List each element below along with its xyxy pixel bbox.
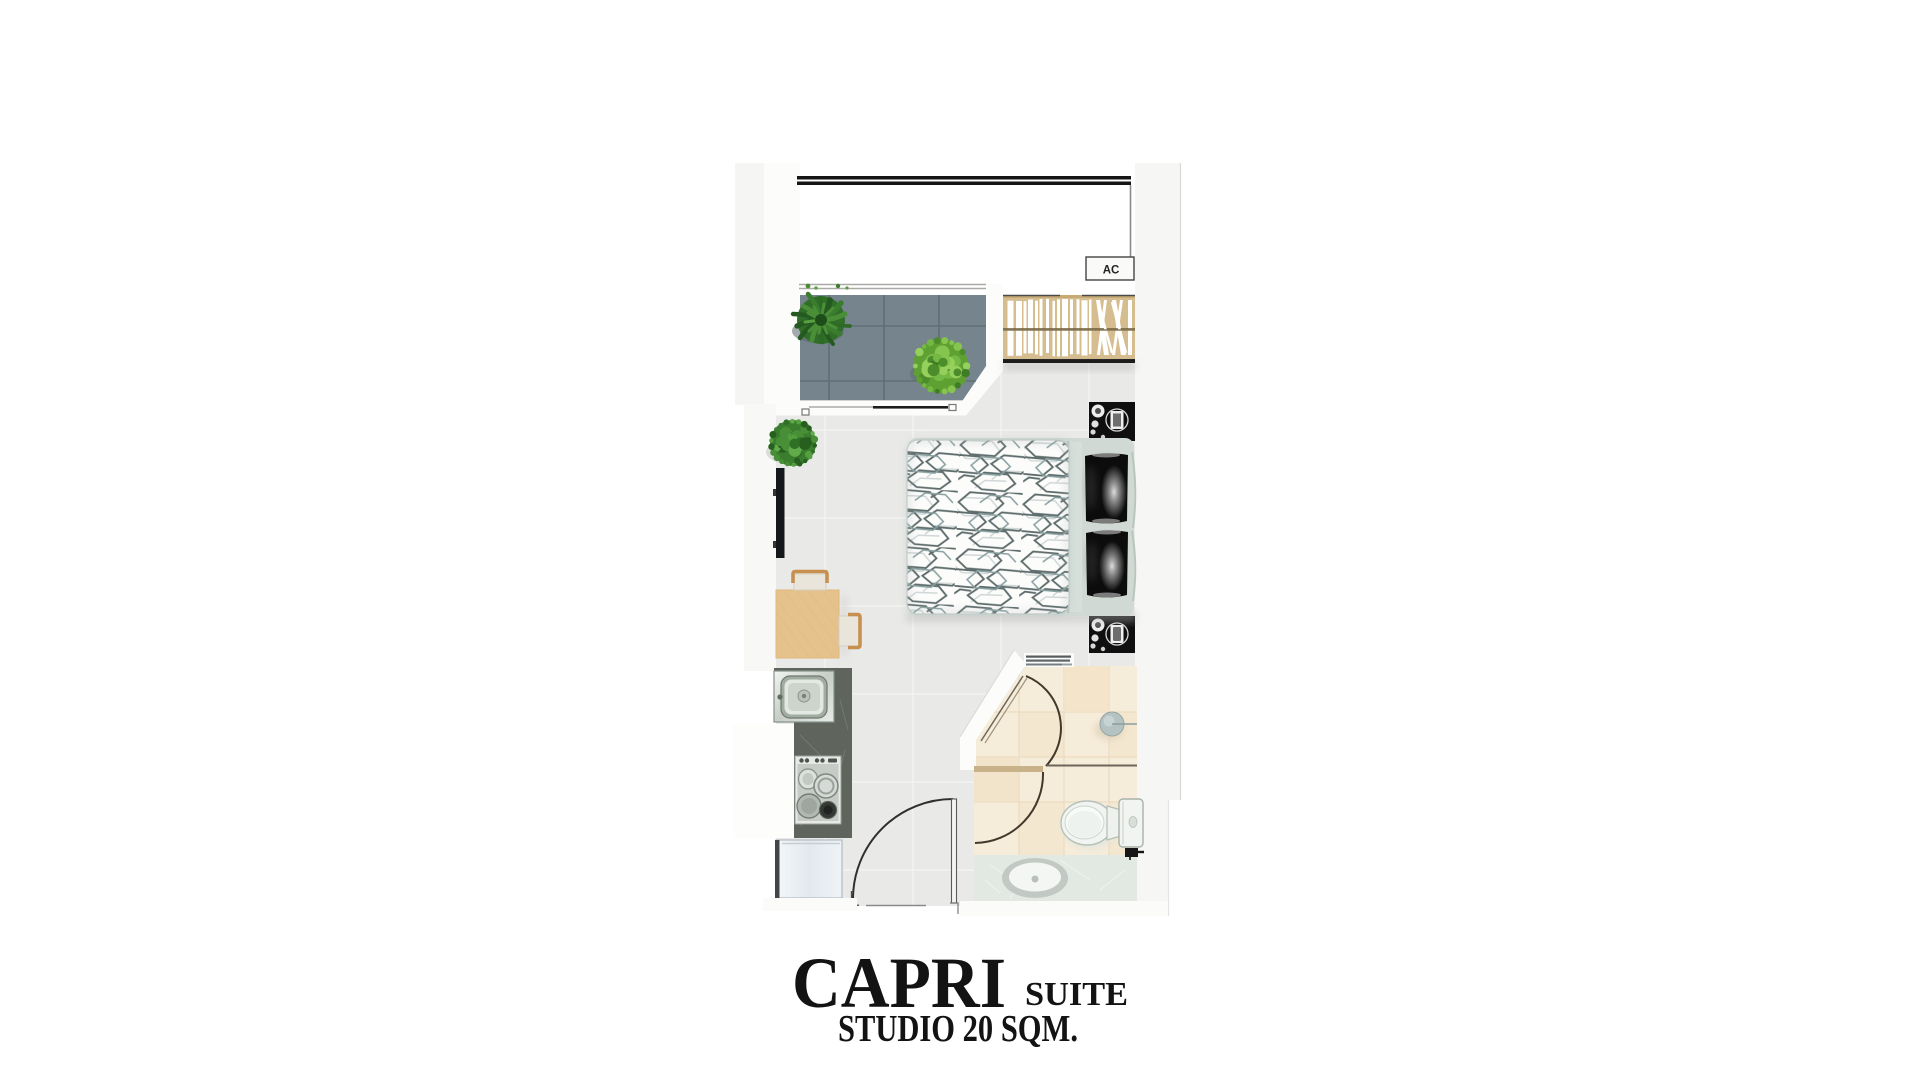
svg-text:STUDIO 20 SQM.: STUDIO 20 SQM. [838,1008,1078,1050]
svg-text:AC: AC [1103,265,1120,277]
